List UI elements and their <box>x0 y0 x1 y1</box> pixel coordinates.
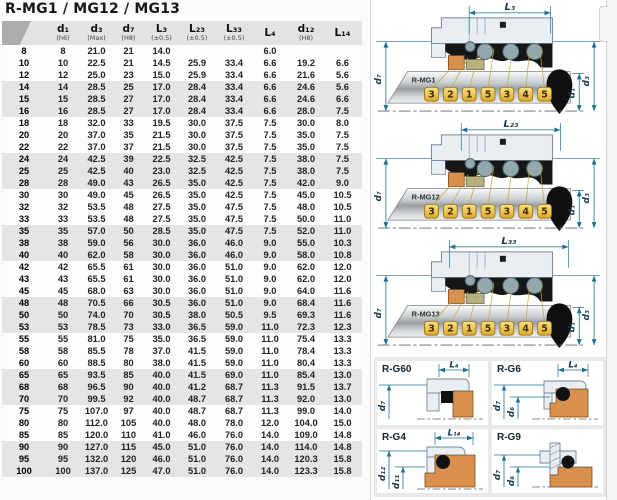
value-cell: 51.0 <box>215 285 253 297</box>
value-cell: 27 <box>113 105 144 117</box>
svg-text:5: 5 <box>485 324 492 335</box>
size-cell: 15 <box>2 93 46 105</box>
callout-chip: 4 <box>519 204 533 218</box>
svg-text:2: 2 <box>447 324 454 335</box>
dim-d3: d₃ <box>582 42 596 111</box>
size-cell: 8 <box>2 45 46 57</box>
value-cell: 7.5 <box>325 129 360 141</box>
value-cell: 48.7 <box>179 393 215 405</box>
svg-text:d₃: d₃ <box>582 310 592 320</box>
value-cell: 28.4 <box>179 81 215 93</box>
svg-text:L₂₃: L₂₃ <box>503 119 519 130</box>
value-cell: 114.0 <box>287 441 325 453</box>
panel-divider <box>370 0 371 500</box>
value-cell: 96.5 <box>80 381 113 393</box>
size-cell: 65 <box>2 369 46 381</box>
size-cell: 18 <box>2 117 46 129</box>
value-cell: 13.0 <box>325 369 360 381</box>
value-cell: 38.0 <box>287 165 325 177</box>
header-note: (±0.5) <box>215 35 253 43</box>
set-screw-icon <box>500 139 506 145</box>
callout-chip: 3 <box>500 204 514 218</box>
value-cell: 61 <box>113 261 144 273</box>
value-cell: 14.5 <box>144 57 179 69</box>
value-cell: 9.0 <box>253 285 287 297</box>
header-cell-L3: L₃(±0.5) <box>144 21 179 45</box>
size-cell: 40 <box>2 249 46 261</box>
value-cell: 17.0 <box>144 105 179 117</box>
value-cell: 68.7 <box>215 405 253 417</box>
value-cell: 7.5 <box>253 129 287 141</box>
value-cell: 80.4 <box>287 357 325 369</box>
value-cell: 19.2 <box>287 57 325 69</box>
value-cell: 85.4 <box>287 369 325 381</box>
value-cell: 30.0 <box>144 261 179 273</box>
diagram-rmg13: R-MG13 3215345 L₃₃ d₇ d₁ d₃ <box>374 236 606 353</box>
size-cell: 68 <box>2 381 46 393</box>
svg-text:5: 5 <box>485 207 492 218</box>
value-cell: 91.5 <box>287 381 325 393</box>
value-cell: 37.0 <box>144 345 179 357</box>
value-cell: 28.5 <box>80 81 113 93</box>
value-cell: 115 <box>113 441 144 453</box>
callout-chip: 3 <box>500 87 514 101</box>
value-cell: 40.0 <box>144 381 179 393</box>
value-cell: 41.5 <box>179 357 215 369</box>
callout-chip: 2 <box>443 204 457 218</box>
value-cell: 16 <box>46 105 80 117</box>
callout-chip: 1 <box>462 204 476 218</box>
value-cell: 35 <box>46 225 80 237</box>
table-row: 303049.04526.535.042.57.545.010.5 <box>2 189 362 201</box>
value-cell: 36.5 <box>179 333 215 345</box>
seal-cross-section: R-MG13 3215345 L₃₃ d₇ d₁ d₃ <box>374 236 606 353</box>
value-cell: 32.0 <box>80 117 113 129</box>
table-row: 282849.04326.535.042.57.542.09.0 <box>2 177 362 189</box>
table-header-row: d₁(h6) d₃(Max) d₇(H8) L₃(±0.5) L₂₃(±0.5)… <box>2 21 362 45</box>
value-cell: 46.0 <box>179 429 215 441</box>
value-cell: 22.5 <box>80 57 113 69</box>
dim-d7: d₇ <box>374 276 388 345</box>
value-cell: 52.0 <box>287 225 325 237</box>
detail-rg60: R-G60L₄d₇ <box>377 361 488 425</box>
value-cell: 7.5 <box>253 165 287 177</box>
value-cell: 11.0 <box>253 333 287 345</box>
value-cell: 32.5 <box>179 153 215 165</box>
table-row: 656593.58540.041.569.011.085.413.0 <box>2 369 362 381</box>
value-cell: 28 <box>46 177 80 189</box>
value-cell: 33.0 <box>144 321 179 333</box>
size-cell: 32 <box>2 201 46 213</box>
table-row: 323253.54827.535.047.57.548.010.5 <box>2 201 362 213</box>
value-cell: 38.0 <box>287 153 325 165</box>
value-cell: 7.5 <box>253 189 287 201</box>
page-title: R-MG1 / MG12 / MG13 <box>5 1 180 17</box>
value-cell: 68.7 <box>215 381 253 393</box>
value-cell: 11.0 <box>325 213 360 225</box>
dim-top: L₁₄ <box>435 429 473 445</box>
size-cell: 80 <box>2 417 46 429</box>
svg-text:3: 3 <box>428 324 435 335</box>
value-cell: 75 <box>46 405 80 417</box>
svg-text:1: 1 <box>466 324 473 335</box>
size-cell: 10 <box>2 57 46 69</box>
value-cell: 11.6 <box>325 297 360 309</box>
header-note: (H8) <box>287 35 325 43</box>
value-cell: 14.0 <box>253 465 287 477</box>
value-cell: 37.5 <box>215 117 253 129</box>
value-cell: 6.0 <box>253 45 287 57</box>
value-cell: 12.3 <box>325 321 360 333</box>
table-row: 202037.03521.530.037.57.535.07.5 <box>2 129 362 141</box>
header-note: (H8) <box>113 35 144 43</box>
value-cell: 120 <box>113 453 144 465</box>
value-cell: 11.3 <box>253 381 287 393</box>
callout-chip: 5 <box>538 87 552 101</box>
value-cell: 28.4 <box>179 93 215 105</box>
value-cell: 28.4 <box>179 105 215 117</box>
value-cell: 25.9 <box>179 69 215 81</box>
header-label: L₁₄ <box>325 28 360 39</box>
value-cell: 37.5 <box>215 129 253 141</box>
value-cell: 35.0 <box>287 141 325 153</box>
value-cell: 10.5 <box>325 201 360 213</box>
svg-text:d₁: d₁ <box>567 322 577 332</box>
size-cell: 12 <box>2 69 46 81</box>
value-cell: 10 <box>46 57 80 69</box>
value-cell: 50 <box>46 309 80 321</box>
callout-chip: 2 <box>443 321 457 335</box>
value-cell: 53.5 <box>80 201 113 213</box>
value-cell: 120.0 <box>80 429 113 441</box>
value-cell: 65.5 <box>80 261 113 273</box>
value-cell: 11.3 <box>253 405 287 417</box>
table-row: 434365.56130.036.051.09.062.012.0 <box>2 273 362 285</box>
value-cell: 10.8 <box>325 249 360 261</box>
size-cell: 38 <box>2 237 46 249</box>
value-cell: 68.0 <box>80 285 113 297</box>
dim-d7: d₇ <box>374 42 388 111</box>
table-row: 181832.03319.530.037.57.530.08.0 <box>2 117 362 129</box>
value-cell: 9.0 <box>325 177 360 189</box>
size-cell: 60 <box>2 357 46 369</box>
value-cell: 14.0 <box>253 441 287 453</box>
value-cell: 33.4 <box>215 105 253 117</box>
seal-cross-section: R-MG12 3215345 L₂₃ d₇ d₁ d₃ <box>374 119 606 236</box>
value-cell: 12 <box>46 69 80 81</box>
value-cell: 59.0 <box>215 357 253 369</box>
table-row: 404062.05830.036.046.09.058.010.8 <box>2 249 362 261</box>
value-cell: 27 <box>113 93 144 105</box>
table-row: 141428.52517.028.433.46.624.65.6 <box>2 81 362 93</box>
svg-text:L₄: L₄ <box>568 361 577 371</box>
value-cell: 93.5 <box>80 369 113 381</box>
value-cell: 11.0 <box>253 345 287 357</box>
header-cell-L23: L₂₃(±0.5) <box>179 21 215 45</box>
value-cell: 78.5 <box>80 321 113 333</box>
svg-text:d₃: d₃ <box>582 76 592 86</box>
value-cell <box>325 45 360 57</box>
value-cell: 74.0 <box>80 309 113 321</box>
value-cell: 11.0 <box>253 369 287 381</box>
value-cell: 53.5 <box>80 213 113 225</box>
value-cell: 76.0 <box>215 465 253 477</box>
callout-chip: 3 <box>425 321 439 335</box>
diagram-rmg12: R-MG12 3215345 L₂₃ d₇ d₁ d₃ <box>374 119 606 236</box>
value-cell: 23.0 <box>144 165 179 177</box>
value-cell: 48 <box>46 297 80 309</box>
value-cell: 7.5 <box>253 153 287 165</box>
size-cell: 25 <box>2 165 46 177</box>
value-cell: 22 <box>46 141 80 153</box>
table-row: 555581.07535.036.559.011.075.413.3 <box>2 333 362 345</box>
value-cell: 51.0 <box>179 441 215 453</box>
value-cell: 21 <box>113 57 144 69</box>
value-cell: 48.0 <box>179 417 215 429</box>
svg-text:3: 3 <box>428 207 435 218</box>
value-cell: 33.4 <box>215 69 253 81</box>
value-cell <box>215 45 253 57</box>
value-cell: 7.5 <box>253 177 287 189</box>
value-cell: 49.0 <box>80 189 113 201</box>
value-cell: 38.0 <box>144 357 179 369</box>
svg-text:4: 4 <box>522 207 529 218</box>
value-cell: 25 <box>113 81 144 93</box>
callout-chip: 5 <box>538 321 552 335</box>
set-screw-icon <box>500 256 506 262</box>
value-cell: 76.0 <box>215 429 253 441</box>
value-cell: 30 <box>46 189 80 201</box>
value-cell: 35.0 <box>287 129 325 141</box>
value-cell: 13.0 <box>325 393 360 405</box>
callout-chip: 5 <box>481 204 495 218</box>
callout-chip: 3 <box>425 87 439 101</box>
size-cell: 35 <box>2 225 46 237</box>
value-cell: 15 <box>46 93 80 105</box>
value-cell: 73 <box>113 321 144 333</box>
value-cell: 88.5 <box>80 357 113 369</box>
callout-chip: 2 <box>443 87 457 101</box>
size-cell: 50 <box>2 309 46 321</box>
value-cell: 24.6 <box>287 81 325 93</box>
value-cell: 28.0 <box>287 105 325 117</box>
value-cell: 11.0 <box>253 357 287 369</box>
table-row: 9090127.011545.051.076.014.0114.014.8 <box>2 441 362 453</box>
value-cell: 33.4 <box>215 81 253 93</box>
value-cell: 68.4 <box>287 297 325 309</box>
table-row: 535378.57333.036.559.011.072.312.3 <box>2 321 362 333</box>
value-cell: 21.5 <box>144 129 179 141</box>
value-cell: 19.5 <box>144 117 179 129</box>
value-cell: 46.0 <box>215 249 253 261</box>
value-cell: 12.0 <box>325 273 360 285</box>
value-cell: 42.5 <box>215 165 253 177</box>
callout-chip: 4 <box>519 321 533 335</box>
value-cell: 45 <box>113 189 144 201</box>
table-row: 424265.56130.036.051.09.062.012.0 <box>2 261 362 273</box>
svg-text:4: 4 <box>522 324 529 335</box>
header-note: (±0.5) <box>144 35 179 43</box>
value-cell: 12.0 <box>325 261 360 273</box>
value-cell: 70 <box>113 309 144 321</box>
svg-text:d₇: d₇ <box>374 308 384 318</box>
value-cell: 51.0 <box>179 453 215 465</box>
value-cell: 109.0 <box>287 429 325 441</box>
value-cell: 40 <box>113 165 144 177</box>
table-row: 161628.52717.028.433.46.628.07.5 <box>2 105 362 117</box>
value-cell: 30.5 <box>144 309 179 321</box>
value-cell: 8.0 <box>325 117 360 129</box>
value-cell: 123.3 <box>287 465 325 477</box>
value-cell: 63 <box>113 285 144 297</box>
value-cell: 40.0 <box>144 393 179 405</box>
value-cell: 11.3 <box>253 393 287 405</box>
value-cell: 92 <box>113 393 144 405</box>
value-cell: 35.0 <box>179 213 215 225</box>
value-cell: 7.5 <box>325 153 360 165</box>
value-cell: 35 <box>113 129 144 141</box>
value-cell: 23 <box>113 69 144 81</box>
value-cell: 14.0 <box>325 405 360 417</box>
value-cell: 38.0 <box>179 309 215 321</box>
value-cell: 9.0 <box>253 261 287 273</box>
value-cell: 7.5 <box>253 141 287 153</box>
size-cell: 42 <box>2 261 46 273</box>
value-cell: 47.5 <box>215 213 253 225</box>
svg-text:d₁: d₁ <box>567 205 577 215</box>
value-cell: 137.0 <box>80 465 113 477</box>
value-cell: 42 <box>46 261 80 273</box>
value-cell: 85 <box>113 369 144 381</box>
value-cell: 32.5 <box>179 165 215 177</box>
size-cell: 70 <box>2 393 46 405</box>
value-cell: 36.0 <box>179 261 215 273</box>
value-cell: 25.0 <box>80 69 113 81</box>
housing-leg <box>427 393 439 411</box>
size-cell: 16 <box>2 105 46 117</box>
value-cell: 18 <box>46 117 80 129</box>
value-cell: 70 <box>46 393 80 405</box>
page-edge <box>606 0 617 500</box>
value-cell: 66 <box>113 297 144 309</box>
value-cell: 51.0 <box>215 261 253 273</box>
value-cell: 61 <box>113 273 144 285</box>
svg-text:L₃: L₃ <box>505 2 516 13</box>
size-cell: 100 <box>2 465 46 477</box>
svg-text:5: 5 <box>485 90 492 101</box>
value-cell: 14.0 <box>144 45 179 57</box>
value-cell: 37 <box>113 141 144 153</box>
value-cell: 46.0 <box>215 237 253 249</box>
value-cell: 6.6 <box>325 57 360 69</box>
value-cell: 48 <box>113 213 144 225</box>
value-cell: 75.4 <box>287 333 325 345</box>
value-cell: 7.5 <box>253 201 287 213</box>
value-cell: 107.0 <box>80 405 113 417</box>
housing-leg <box>427 457 435 475</box>
detail-view-label: R-G6 <box>497 364 521 375</box>
value-cell: 55 <box>46 333 80 345</box>
value-cell: 40.0 <box>144 405 179 417</box>
value-cell: 90 <box>46 441 80 453</box>
value-cell: 36.0 <box>179 273 215 285</box>
value-cell: 47.0 <box>144 465 179 477</box>
size-cell: 58 <box>2 345 46 357</box>
svg-text:3: 3 <box>504 324 511 335</box>
callout-chip: 4 <box>519 87 533 101</box>
size-cell: 20 <box>2 129 46 141</box>
value-cell: 8 <box>46 45 80 57</box>
value-cell: 100 <box>46 465 80 477</box>
callout-chip: 1 <box>462 87 476 101</box>
value-cell: 78.4 <box>287 345 325 357</box>
value-cell: 10.3 <box>325 237 360 249</box>
value-cell: 35.0 <box>179 177 215 189</box>
value-cell: 11.0 <box>253 321 287 333</box>
set-screw-icon <box>500 22 506 28</box>
callout-chip: 3 <box>500 321 514 335</box>
size-cell: 85 <box>2 429 46 441</box>
value-cell: 11.6 <box>325 285 360 297</box>
svg-text:5: 5 <box>541 207 548 218</box>
size-cell: 30 <box>2 189 46 201</box>
table-row: 121225.02315.025.933.46.621.65.6 <box>2 69 362 81</box>
detail-view-label: R-G60 <box>382 364 411 375</box>
table-row: 8585120.011041.046.076.014.0109.014.8 <box>2 429 362 441</box>
detail-view-label: R-G9 <box>497 432 521 443</box>
diagram-label: R-MG13 <box>412 309 440 318</box>
svg-text:d₇: d₇ <box>378 401 388 411</box>
value-cell: 65.5 <box>80 273 113 285</box>
detail-rg9: R-G9d₇d₆ <box>492 429 603 493</box>
value-cell: 48.0 <box>287 201 325 213</box>
dim-top: L₄ <box>439 361 469 377</box>
svg-text:2: 2 <box>447 207 454 218</box>
seal-cross-section: R-MG1 3215345 L₃ d₇ d₁ d₃ <box>374 2 606 119</box>
size-cell: 75 <box>2 405 46 417</box>
header-cell-L4: L₄ <box>253 21 287 45</box>
value-cell: 9.0 <box>253 273 287 285</box>
header-corner-cell <box>2 21 46 45</box>
header-cell-L33: L₃₃(±0.5) <box>215 21 253 45</box>
header-note: (±0.5) <box>179 35 215 43</box>
table-row: 707099.59240.048.768.711.392.013.0 <box>2 393 362 405</box>
value-cell: 12.0 <box>253 417 287 429</box>
value-cell: 48.7 <box>179 405 215 417</box>
value-cell: 85 <box>46 429 80 441</box>
value-cell: 42.5 <box>80 153 113 165</box>
value-cell: 105 <box>113 417 144 429</box>
header-cell-d7: d₇(H8) <box>113 21 144 45</box>
value-cell: 97 <box>113 405 144 417</box>
value-cell: 42.5 <box>215 153 253 165</box>
detail-rg6: R-G6L₄d₇d₆ <box>492 361 603 425</box>
value-cell: 36.0 <box>179 297 215 309</box>
value-cell: 62.0 <box>287 261 325 273</box>
value-cell: 21 <box>113 45 144 57</box>
value-cell: 5.6 <box>325 69 360 81</box>
value-cell: 41.5 <box>179 345 215 357</box>
svg-text:L₃₃: L₃₃ <box>501 236 517 247</box>
value-cell: 58 <box>46 345 80 357</box>
value-cell: 14.8 <box>325 441 360 453</box>
value-cell: 7.5 <box>325 105 360 117</box>
value-cell: 43 <box>46 273 80 285</box>
value-cell: 112.0 <box>80 417 113 429</box>
svg-text:d₁₁: d₁₁ <box>392 475 402 489</box>
value-cell: 25.9 <box>179 57 215 69</box>
value-cell: 45.0 <box>287 189 325 201</box>
